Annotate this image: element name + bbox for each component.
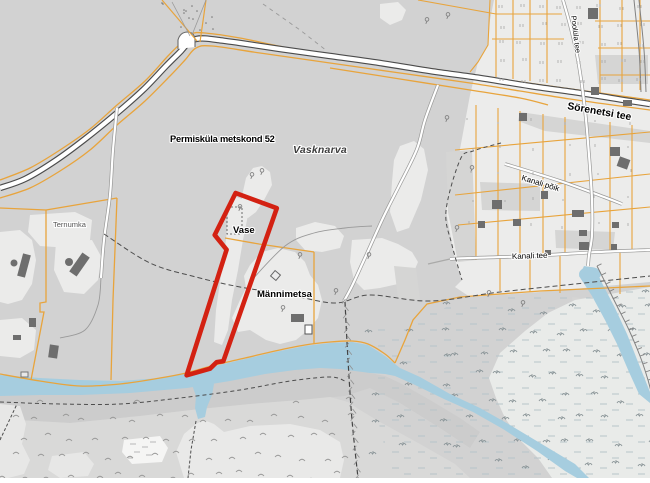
svg-text:Vasknarva: Vasknarva (293, 144, 347, 156)
svg-text:Ternumka: Ternumka (53, 220, 87, 229)
svg-text:Männimetsa: Männimetsa (257, 289, 313, 300)
svg-text:Permisküla metskond 52: Permisküla metskond 52 (170, 134, 275, 144)
svg-text:Kanali tee: Kanali tee (512, 251, 548, 261)
svg-text:Vase: Vase (233, 225, 255, 236)
